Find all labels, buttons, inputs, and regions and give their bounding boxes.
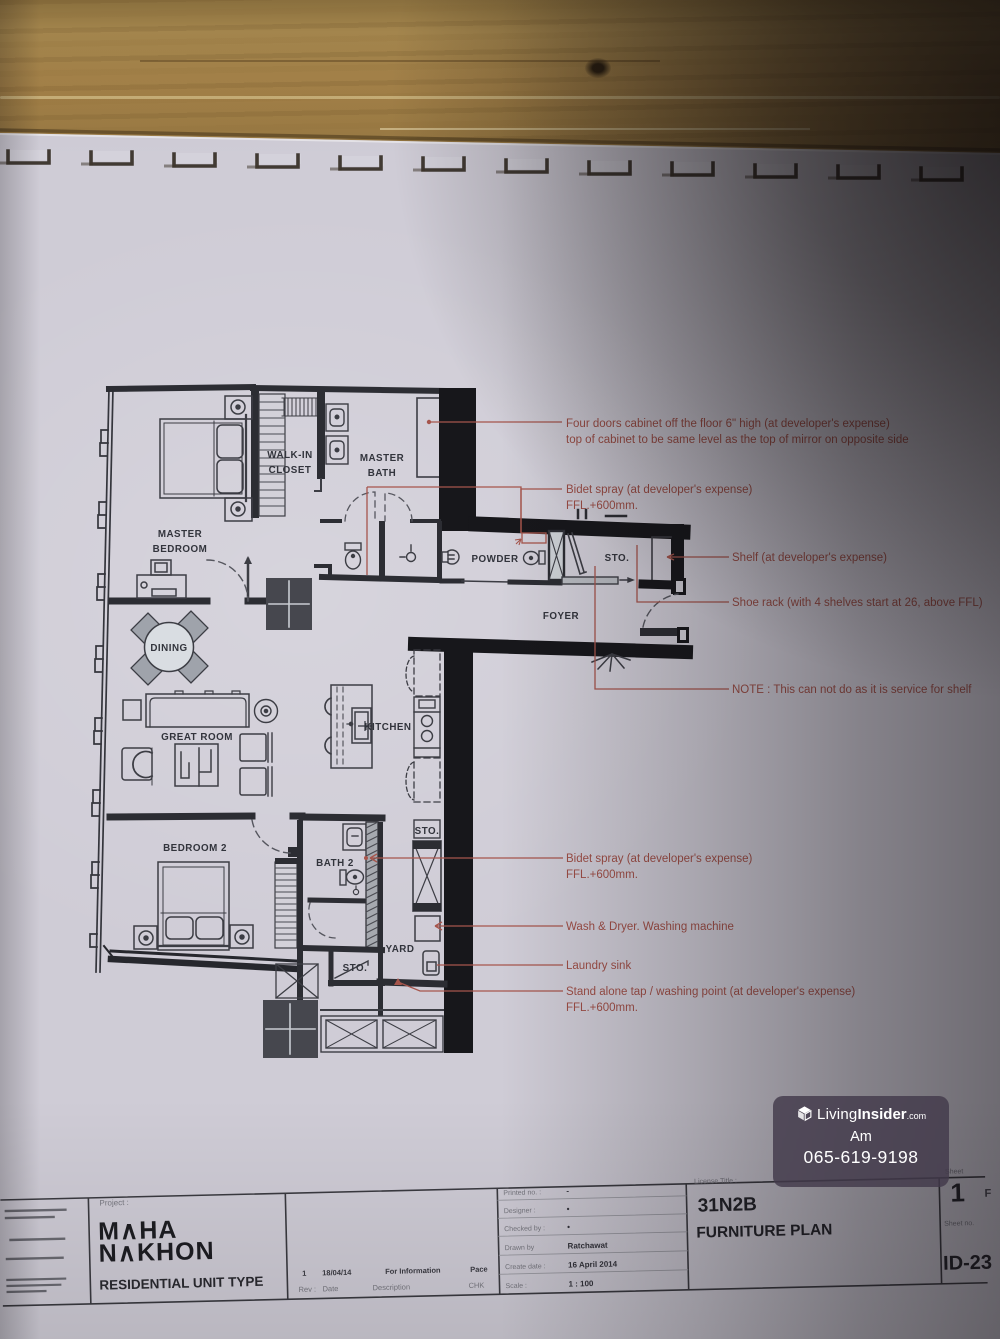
svg-text:Designer :: Designer :: [504, 1207, 536, 1215]
svg-text:-: -: [566, 1187, 569, 1196]
svg-text:18/04/14: 18/04/14: [322, 1268, 352, 1278]
svg-text:Rev :: Rev :: [298, 1285, 316, 1294]
svg-text:CHK: CHK: [468, 1281, 484, 1290]
svg-text:Drawn by: Drawn by: [505, 1244, 535, 1252]
svg-text:1 : 100: 1 : 100: [568, 1279, 594, 1289]
svg-text:31N2B: 31N2B: [697, 1194, 757, 1216]
svg-text:•: •: [567, 1205, 570, 1214]
svg-text:RESIDENTIAL UNIT TYPE: RESIDENTIAL UNIT TYPE: [99, 1274, 263, 1293]
svg-text:Project :: Project :: [99, 1198, 129, 1208]
svg-text:Date: Date: [322, 1284, 338, 1293]
svg-text:For Information: For Information: [385, 1266, 441, 1276]
svg-text:Sheet no.: Sheet no.: [944, 1220, 974, 1228]
svg-text:F: F: [984, 1188, 991, 1200]
svg-text:Ratchawat: Ratchawat: [568, 1241, 609, 1251]
svg-text:Pace: Pace: [470, 1265, 488, 1274]
svg-text:Scale :: Scale :: [505, 1283, 527, 1291]
svg-text:FURNITURE PLAN: FURNITURE PLAN: [696, 1221, 832, 1241]
svg-text:1: 1: [302, 1269, 306, 1278]
svg-text:Checked by :: Checked by :: [504, 1225, 545, 1233]
svg-text:Description: Description: [372, 1282, 410, 1292]
svg-text:•: •: [567, 1223, 570, 1232]
svg-text:N∧KHON: N∧KHON: [98, 1237, 215, 1268]
svg-text:Printed no. :: Printed no. :: [503, 1189, 541, 1197]
svg-text:1: 1: [950, 1177, 965, 1207]
svg-text:Create date :: Create date :: [505, 1263, 546, 1271]
svg-text:ID-23: ID-23: [943, 1252, 992, 1275]
svg-text:License Title :: License Title :: [694, 1178, 737, 1186]
svg-text:16 April 2014: 16 April 2014: [568, 1259, 618, 1269]
